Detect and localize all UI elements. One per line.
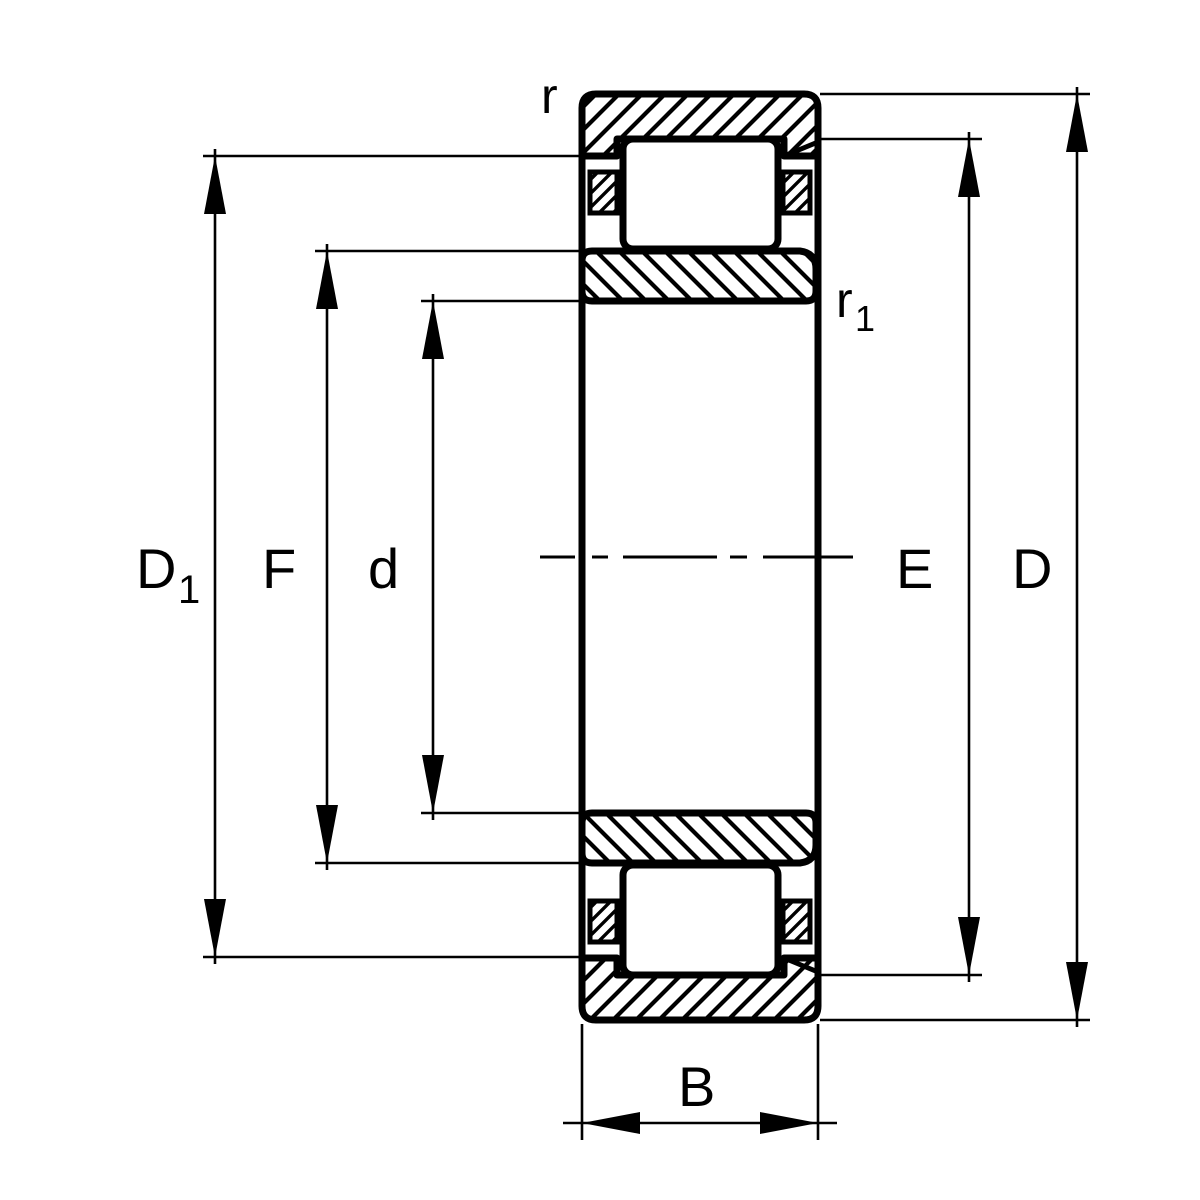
label-inner-chamfer-sub: 1 bbox=[855, 298, 875, 339]
arrow-b-right bbox=[760, 1112, 818, 1134]
arrow-b-left bbox=[582, 1112, 640, 1134]
cage-top-right bbox=[783, 172, 810, 213]
inner-ring-bottom-section bbox=[582, 813, 816, 863]
cage-bottom-left bbox=[590, 901, 617, 942]
label-inner-chamfer: r bbox=[836, 272, 853, 328]
bearing-dimension-drawing: D 1 F d E D r r 1 B bbox=[0, 0, 1200, 1200]
drawing-canvas: D 1 F d E D r r 1 B bbox=[0, 0, 1200, 1200]
roller-bottom bbox=[623, 865, 778, 975]
roller-top bbox=[623, 139, 778, 249]
arrow-d1-down bbox=[204, 899, 226, 957]
arrow-e-up bbox=[958, 139, 980, 197]
arrow-od-down bbox=[1066, 962, 1088, 1020]
label-inner-raceway-diameter: F bbox=[262, 537, 296, 600]
label-bore-diameter: d bbox=[368, 537, 399, 600]
label-outside-diameter: D bbox=[1012, 537, 1052, 600]
arrow-e-down bbox=[958, 917, 980, 975]
arrow-d1-up bbox=[204, 156, 226, 214]
cage-bottom-right bbox=[783, 901, 810, 942]
label-outer-chamfer: r bbox=[541, 68, 558, 124]
arrow-od-up bbox=[1066, 94, 1088, 152]
label-bore-shoulder-diameter: D bbox=[136, 537, 176, 600]
arrow-d-up bbox=[422, 301, 444, 359]
label-outer-raceway-diameter: E bbox=[896, 537, 933, 600]
arrow-d-down bbox=[422, 755, 444, 813]
inner-ring-top-section bbox=[582, 251, 816, 301]
label-width: B bbox=[678, 1055, 715, 1118]
arrow-f-up bbox=[316, 251, 338, 309]
label-bore-shoulder-diameter-sub: 1 bbox=[178, 568, 200, 612]
cage-top-left bbox=[590, 172, 617, 213]
arrow-f-down bbox=[316, 805, 338, 863]
